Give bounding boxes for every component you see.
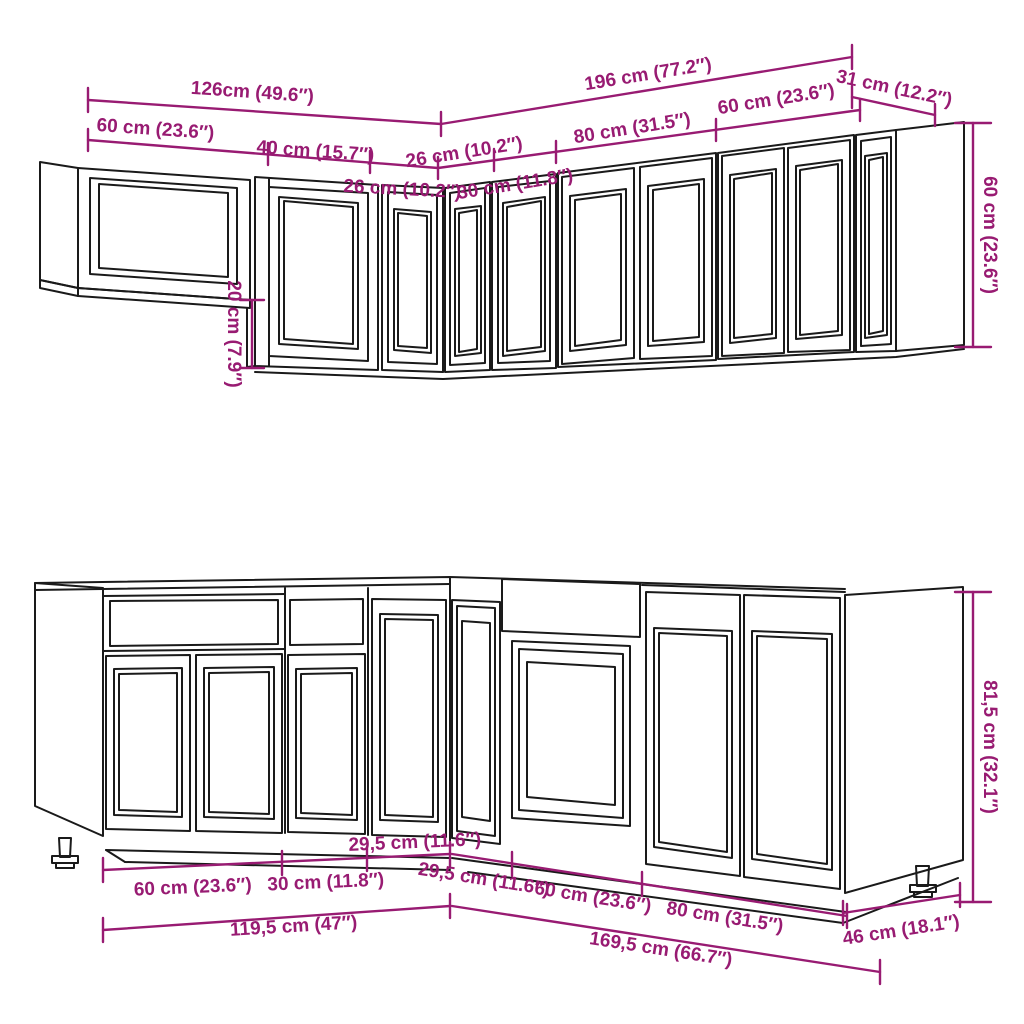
dim-upper-w40: 40 cm (15.7″) xyxy=(256,137,375,166)
kitchen-cabinet-diagram: 126cm (49.6″) 196 cm (77.2″) 31 cm (12.2… xyxy=(0,0,1024,1024)
dim-lower-w295-left: 29,5 cm (11.6″) xyxy=(348,829,481,856)
dim-lower-w30: 30 cm (11.8″) xyxy=(267,869,385,895)
upper-wall-cabinet-31-end xyxy=(856,130,896,352)
lower-left-side-panel xyxy=(35,583,103,836)
dim-upper-total-left: 126cm (49.6″) xyxy=(190,78,314,108)
upper-wall-cabinet-30 xyxy=(492,174,556,370)
diagram-canvas: 126cm (49.6″) 196 cm (77.2″) 31 cm (12.2… xyxy=(0,0,1024,1024)
lower-right-side-panel xyxy=(845,587,963,893)
upper-wall-cabinet-60-double xyxy=(718,135,854,359)
lower-sink-cabinet-60-recessed xyxy=(502,579,640,826)
upper-wall-cabinet-26-right xyxy=(445,182,490,372)
upper-wall-cabinet-80-double xyxy=(558,153,716,367)
dim-upper-w60-left: 60 cm (23.6″) xyxy=(96,115,215,144)
upper-wall-cabinet-60-glass xyxy=(40,162,250,308)
dim-lower-height: 81,5 cm (32.1″) xyxy=(979,680,1000,814)
dim-upper-w26-right: 26 cm (10.2″) xyxy=(404,133,524,172)
adjustable-foot-left xyxy=(52,838,78,868)
dim-lower-w60-left: 60 cm (23.6″) xyxy=(133,874,252,900)
cabinet-line-art xyxy=(35,122,964,923)
lower-corner-cabinet-right-face xyxy=(452,600,500,844)
dim-upper-w60-right: 60 cm (23.6″) xyxy=(716,80,836,119)
lower-corner-cabinet-left-face xyxy=(372,599,446,837)
upper-wall-cabinet-26-left xyxy=(382,185,443,372)
lower-base-cabinet-60-drawer xyxy=(103,588,285,833)
dim-upper-drop: 20 cm (7.9″) xyxy=(223,280,244,387)
dim-upper-total-right: 196 cm (77.2″) xyxy=(583,54,713,95)
lower-base-cabinet-80-double xyxy=(642,585,845,889)
upper-right-side-panel xyxy=(896,122,964,351)
lower-base-cabinet-30-drawer xyxy=(288,588,368,835)
dim-lower-total-right: 169,5 cm (66.7″) xyxy=(588,928,734,971)
dim-upper-height: 60 cm (23.6″) xyxy=(979,176,1000,294)
dim-upper-w26-left: 26 cm (10.2″) xyxy=(343,176,462,203)
dim-lower-total-left: 119,5 cm (47″) xyxy=(229,912,357,941)
dim-lower-w295-right: 29,5 cm (11.6″) xyxy=(417,859,551,900)
upper-wall-cabinet-40 xyxy=(255,177,378,370)
